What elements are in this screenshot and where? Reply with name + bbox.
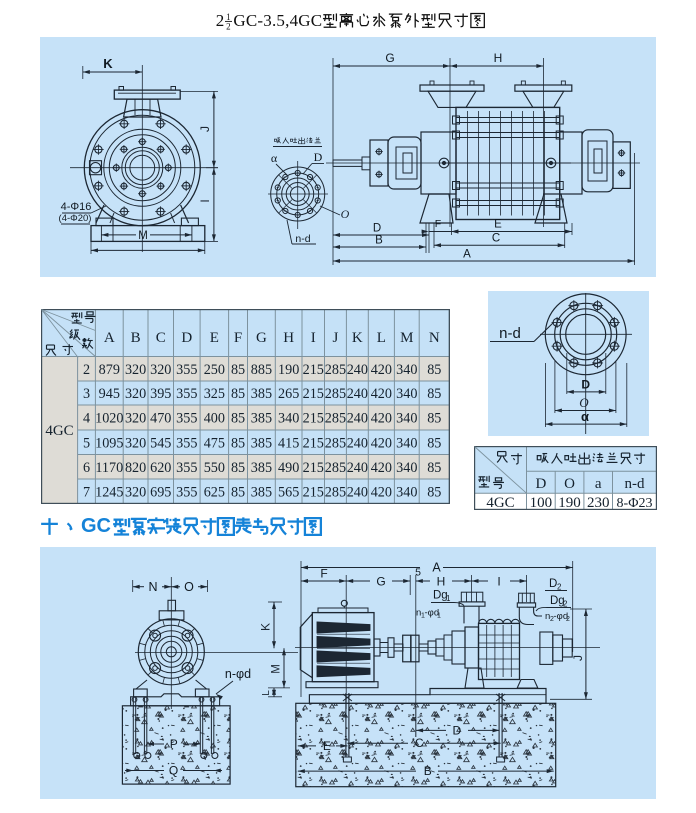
svg-text:320: 320 [125,386,146,402]
svg-text:1170: 1170 [95,460,123,476]
svg-text:340: 340 [396,484,417,500]
svg-text:C: C [156,330,166,346]
svg-text:340: 340 [396,460,417,476]
svg-text:385: 385 [251,484,272,500]
svg-text:620: 620 [150,460,171,476]
svg-text:5: 5 [83,435,90,451]
svg-text:G: G [376,575,385,589]
svg-text:625: 625 [204,484,225,500]
svg-text:E: E [494,219,502,231]
svg-text:240: 240 [347,411,368,427]
svg-text:415: 415 [278,435,299,451]
svg-text:400: 400 [204,411,225,427]
svg-text:A: A [104,330,115,346]
svg-text:85: 85 [231,362,245,378]
svg-text:215: 215 [303,411,324,427]
svg-text:320: 320 [125,435,146,451]
svg-text:215: 215 [303,484,324,500]
svg-text:D: D [535,476,546,492]
svg-text:285: 285 [325,362,346,378]
svg-text:N: N [429,330,440,346]
svg-text:320: 320 [125,362,146,378]
svg-text:2: 2 [566,616,570,623]
svg-text:695: 695 [150,484,171,500]
svg-text:285: 285 [325,386,346,402]
svg-text:N: N [148,580,157,594]
svg-text:355: 355 [176,411,197,427]
svg-text:420: 420 [371,435,392,451]
svg-text:420: 420 [371,484,392,500]
svg-text:B: B [131,330,141,346]
svg-text:6: 6 [83,460,90,476]
svg-text:F: F [320,567,327,581]
svg-text:240: 240 [347,386,368,402]
svg-text:O: O [579,395,589,410]
svg-text:1: 1 [446,594,451,603]
svg-text:470: 470 [150,411,171,427]
svg-text:85: 85 [427,484,441,500]
svg-text:190: 190 [278,362,299,378]
svg-text:240: 240 [347,362,368,378]
svg-text:85: 85 [427,460,441,476]
svg-text:J: J [333,330,339,346]
svg-text:85: 85 [427,411,441,427]
svg-text:85: 85 [231,484,245,500]
svg-text:H: H [437,575,446,589]
svg-text:85: 85 [231,411,245,427]
svg-text:355: 355 [176,435,197,451]
svg-text:I: I [198,199,212,202]
svg-text:385: 385 [251,435,272,451]
svg-text:A: A [463,249,471,261]
svg-text:385: 385 [251,386,272,402]
svg-text:D: D [314,150,323,164]
svg-text:L: L [261,690,272,696]
svg-text:285: 285 [325,484,346,500]
svg-text:240: 240 [347,460,368,476]
svg-text:355: 355 [176,386,197,402]
svg-text:O: O [341,207,350,221]
svg-text:E: E [323,739,331,753]
svg-text:285: 285 [325,435,346,451]
svg-text:340: 340 [278,411,299,427]
svg-text:265: 265 [278,386,299,402]
svg-text:C: C [492,233,500,245]
svg-text:F: F [234,330,242,346]
svg-text:545: 545 [150,435,171,451]
svg-text:M: M [138,230,148,242]
svg-text:420: 420 [371,411,392,427]
svg-text:B: B [424,764,432,778]
svg-text:O: O [564,476,575,492]
svg-text:4GC: 4GC [45,423,73,439]
svg-text:240: 240 [347,484,368,500]
svg-text:L: L [377,330,386,346]
svg-text:4: 4 [83,411,90,427]
svg-text:85: 85 [231,435,245,451]
svg-text:O: O [184,580,194,594]
svg-text:490: 490 [278,460,299,476]
svg-text:n-φd: n-φd [225,667,251,681]
svg-text:879: 879 [99,362,120,378]
svg-text:B: B [375,235,383,247]
svg-text:1245: 1245 [95,484,123,500]
svg-text:215: 215 [303,362,324,378]
svg-text:J: J [198,126,212,132]
svg-text:P: P [170,737,178,751]
svg-text:n-d: n-d [499,325,521,342]
svg-text:420: 420 [371,386,392,402]
svg-text:α: α [271,151,278,165]
svg-text:J: J [571,655,585,661]
svg-text:230: 230 [587,495,610,510]
svg-text:355: 355 [176,362,197,378]
svg-text:D: D [581,378,590,392]
svg-text:885: 885 [251,362,272,378]
svg-text:420: 420 [371,362,392,378]
svg-text:D: D [373,223,381,235]
svg-text:475: 475 [204,435,225,451]
svg-text:215: 215 [303,435,324,451]
svg-text:100: 100 [530,495,553,510]
svg-text:H: H [494,51,503,65]
svg-text:1020: 1020 [95,411,123,427]
svg-text:F: F [435,218,441,230]
svg-text:G: G [256,330,267,346]
svg-text:C: C [415,736,424,750]
svg-text:H: H [283,330,294,346]
svg-text:I: I [497,575,500,589]
svg-text:945: 945 [99,386,120,402]
svg-text:85: 85 [427,435,441,451]
svg-text:I: I [311,330,316,346]
svg-text:355: 355 [176,460,197,476]
svg-text:285: 285 [325,411,346,427]
svg-text:395: 395 [150,386,171,402]
svg-text:2: 2 [83,362,90,378]
svg-text:D: D [452,723,461,737]
svg-text:325: 325 [204,386,225,402]
svg-text:A: A [432,561,441,575]
svg-text:1: 1 [437,613,441,620]
svg-text:7: 7 [83,484,90,500]
svg-text:8-Φ23: 8-Φ23 [617,496,653,510]
svg-text:85: 85 [231,386,245,402]
svg-text:240: 240 [347,435,368,451]
svg-text:3: 3 [83,386,90,402]
svg-text:K: K [352,330,363,346]
svg-text:190: 190 [558,495,581,510]
svg-text:1095: 1095 [95,435,123,451]
svg-text:215: 215 [303,386,324,402]
svg-text:355: 355 [176,484,197,500]
svg-text:340: 340 [396,411,417,427]
svg-text:215: 215 [303,460,324,476]
svg-text:M: M [400,330,413,346]
svg-text:Q: Q [169,764,178,778]
svg-text:K: K [103,56,113,71]
svg-text:(4-Φ20): (4-Φ20) [59,213,92,224]
svg-text:D: D [181,330,192,346]
svg-text:M: M [271,664,283,674]
svg-text:n-d: n-d [295,233,310,245]
svg-text:85: 85 [427,386,441,402]
svg-text:K: K [259,623,273,631]
svg-text:385: 385 [251,411,272,427]
svg-text:250: 250 [204,362,225,378]
svg-text:4-Φ16: 4-Φ16 [61,201,92,213]
svg-text:4GC: 4GC [486,495,514,510]
svg-text:285: 285 [325,460,346,476]
svg-text:340: 340 [396,386,417,402]
svg-text:α: α [581,409,589,424]
svg-text:85: 85 [427,362,441,378]
svg-text:E: E [210,330,219,346]
svg-text:820: 820 [125,460,146,476]
svg-text:n-d: n-d [625,476,645,492]
svg-text:320: 320 [125,484,146,500]
svg-text:565: 565 [278,484,299,500]
svg-text:340: 340 [396,435,417,451]
svg-text:420: 420 [371,460,392,476]
svg-text:G: G [385,51,394,65]
svg-text:550: 550 [204,460,225,476]
svg-text:385: 385 [251,460,272,476]
svg-text:5: 5 [415,567,421,579]
svg-text:320: 320 [150,362,171,378]
svg-text:340: 340 [396,362,417,378]
svg-text:a: a [595,476,602,492]
svg-text:85: 85 [231,460,245,476]
svg-text:320: 320 [125,411,146,427]
svg-text:2: 2 [227,21,232,30]
